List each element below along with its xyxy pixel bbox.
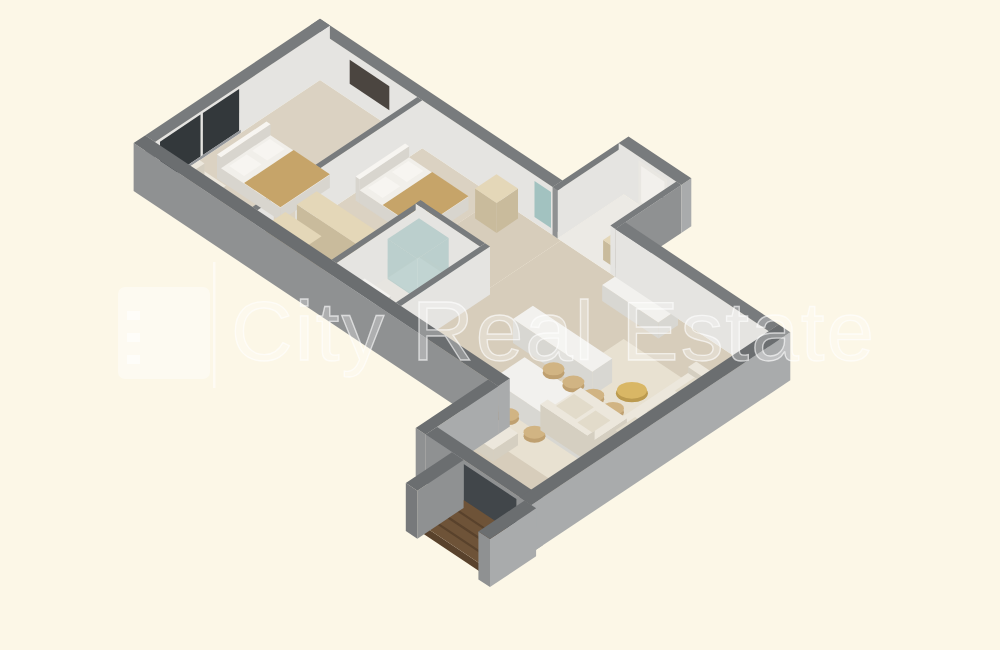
watermark-text: City Real Estate [231,284,876,378]
watermark-logo-marks [127,311,140,364]
watermark-divider [213,262,216,388]
floor-plan-page: City Real Estate [0,0,1000,650]
floor-plan-render: City Real Estate [0,0,1000,650]
